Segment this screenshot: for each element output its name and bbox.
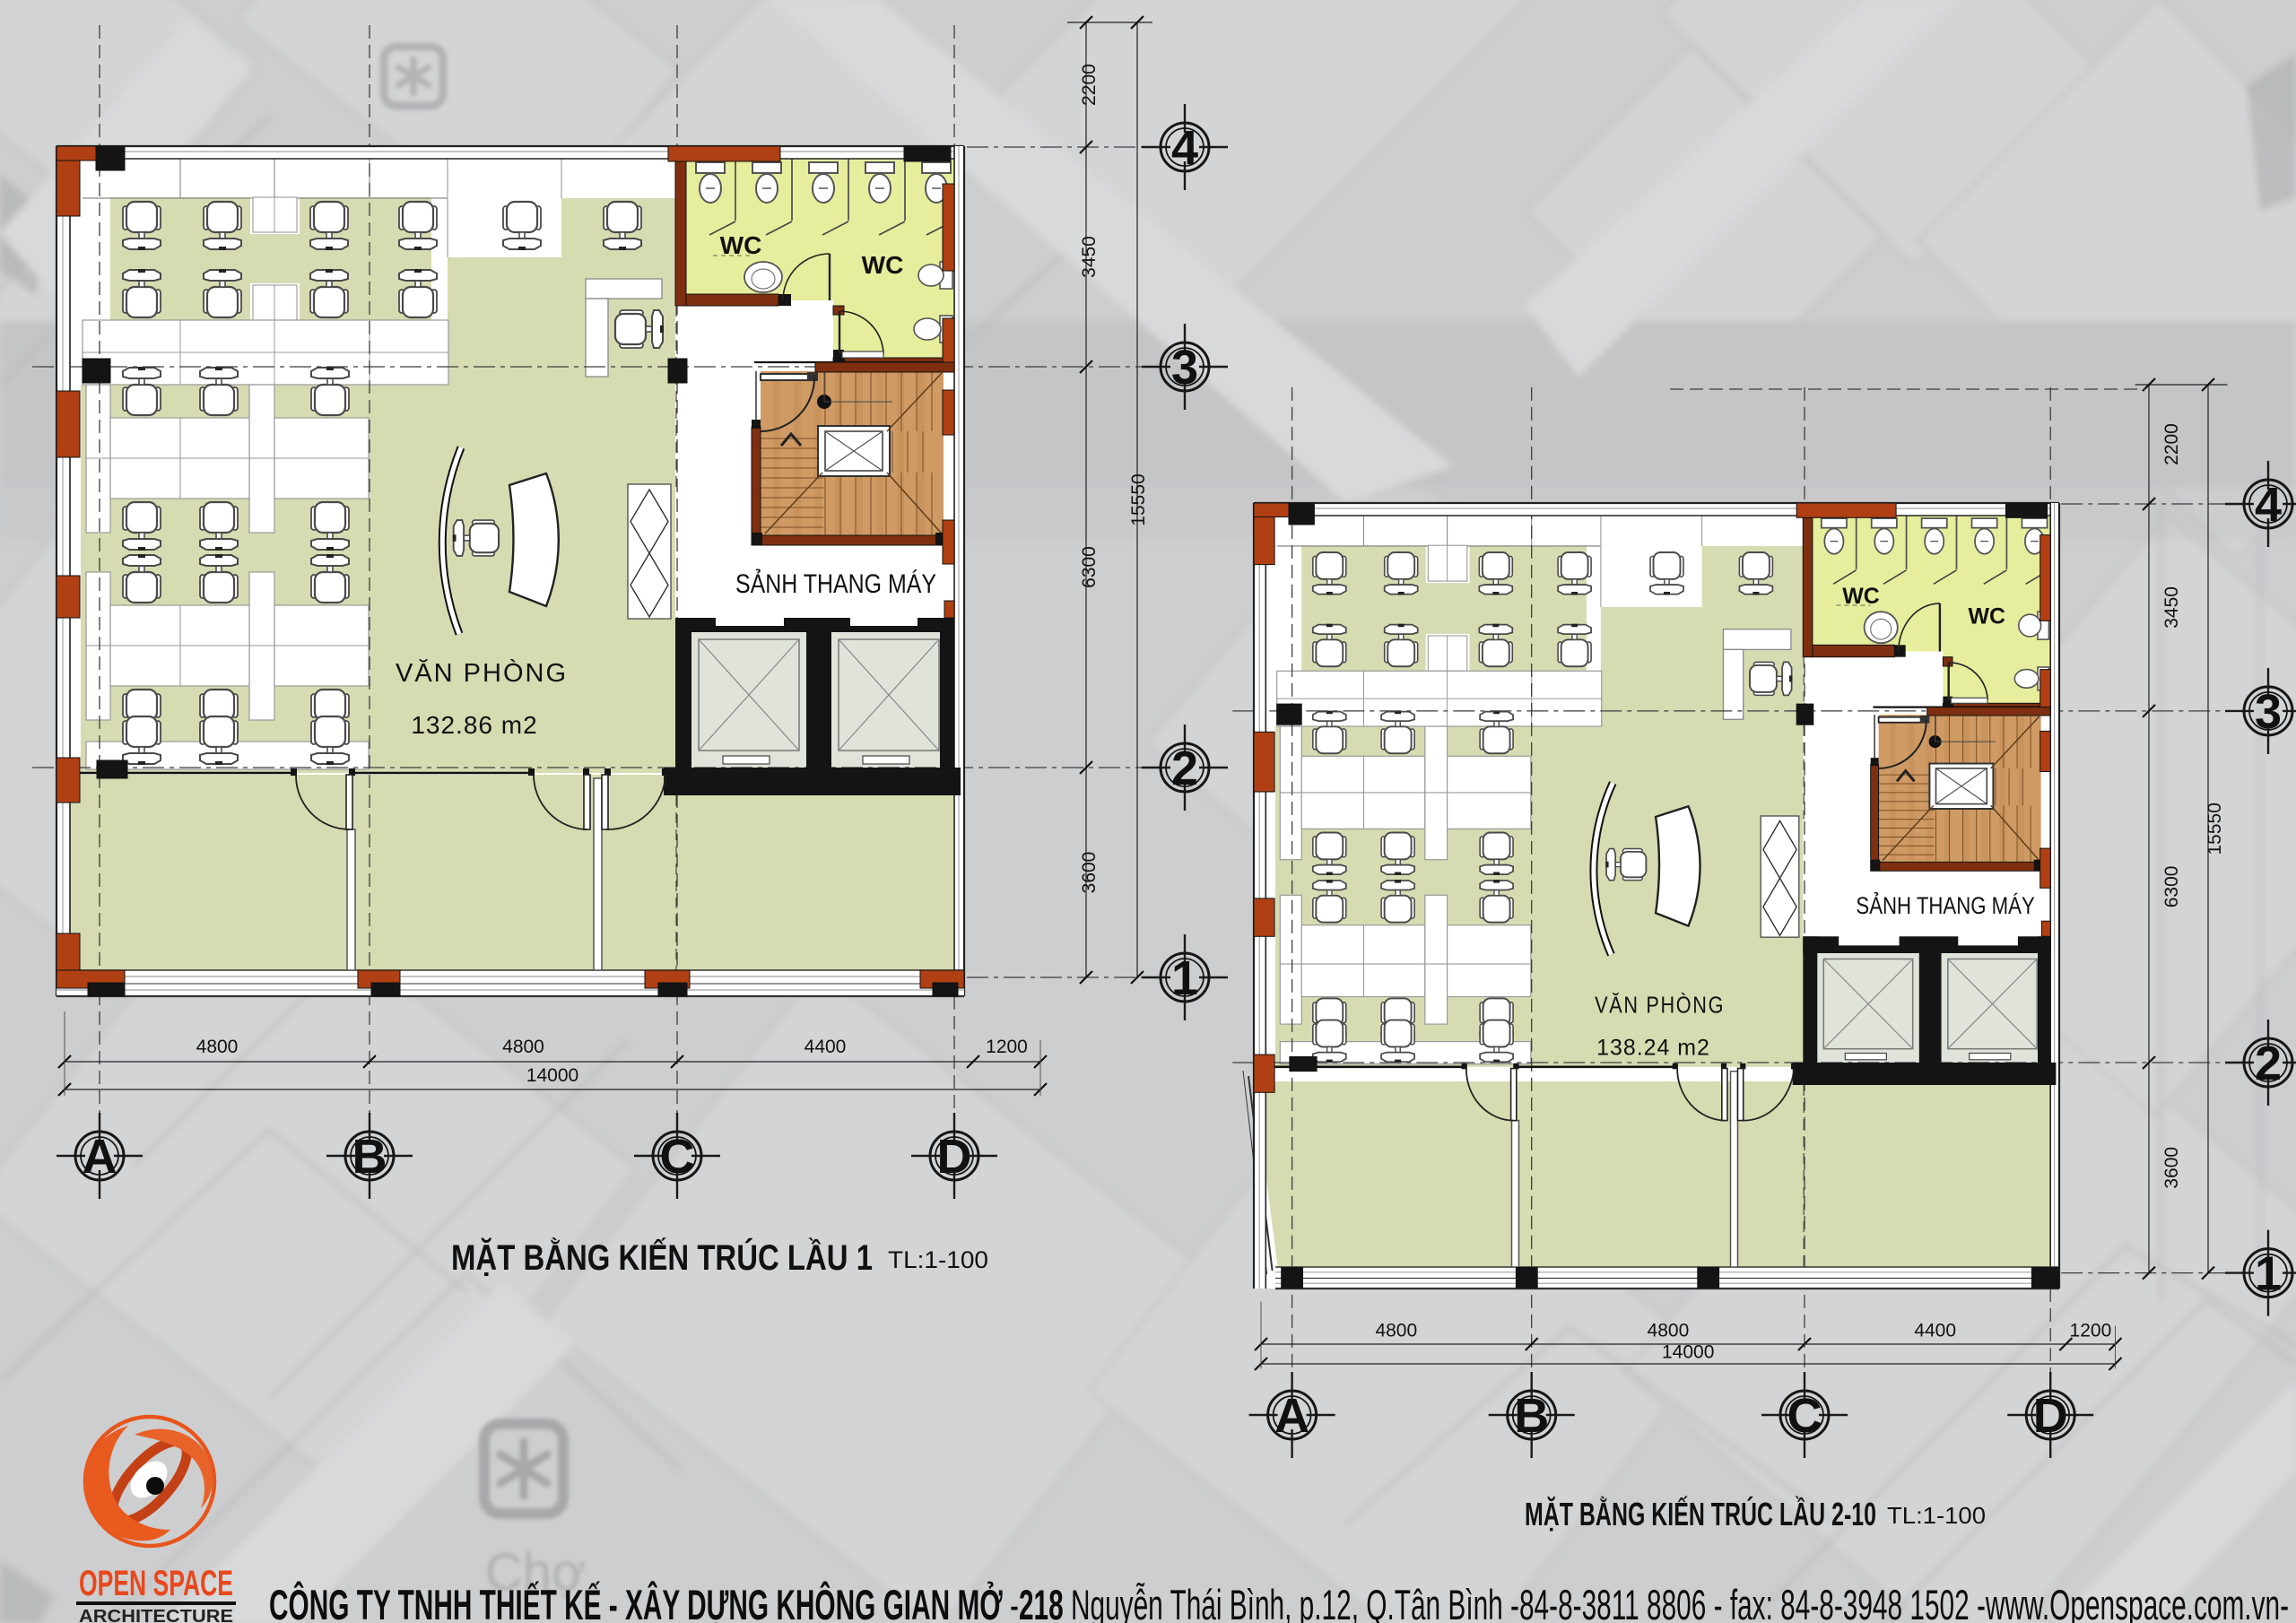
svg-text:C: C	[660, 1130, 695, 1184]
svg-text:6300: 6300	[1079, 546, 1100, 588]
svg-text:3: 3	[2255, 685, 2282, 739]
svg-text:15550: 15550	[1128, 473, 1149, 525]
svg-text:WC: WC	[1969, 604, 2006, 629]
svg-text:C: C	[1787, 1389, 1822, 1443]
svg-text:3600: 3600	[2161, 1147, 2182, 1189]
svg-text:CÔNG TY TNHH THIẾT KẾ - XÂY DỰ: CÔNG TY TNHH THIẾT KẾ - XÂY DỰNG KHÔNG G…	[269, 1581, 2289, 1623]
svg-text:138.24 m2: 138.24 m2	[1596, 1035, 1710, 1060]
svg-text:A: A	[1274, 1389, 1309, 1443]
svg-text:B: B	[352, 1130, 387, 1184]
svg-text:D: D	[937, 1130, 972, 1184]
svg-text:TL:1-100: TL:1-100	[1887, 1502, 1986, 1529]
svg-text:132.86 m2: 132.86 m2	[411, 711, 537, 739]
svg-text:2200: 2200	[1079, 64, 1100, 106]
svg-text:ARCHITECTURE: ARCHITECTURE	[79, 1607, 233, 1623]
svg-text:TL:1-100: TL:1-100	[888, 1246, 988, 1273]
svg-text:4400: 4400	[1914, 1321, 1956, 1341]
svg-text:3600: 3600	[1079, 852, 1100, 894]
svg-text:VĂN PHÒNG: VĂN PHÒNG	[1595, 992, 1725, 1018]
svg-text:2: 2	[2255, 1037, 2282, 1090]
svg-text:VĂN PHÒNG: VĂN PHÒNG	[396, 658, 568, 688]
svg-text:4800: 4800	[1648, 1321, 1690, 1341]
svg-text:6300: 6300	[2161, 866, 2182, 908]
svg-text:1200: 1200	[986, 1037, 1028, 1057]
svg-text:2: 2	[1171, 742, 1198, 795]
svg-text:MẶT BẰNG KIẾN TRÚC LẦU 2-10: MẶT BẰNG KIẾN TRÚC LẦU 2-10	[1525, 1495, 1876, 1532]
svg-text:1: 1	[2255, 1247, 2282, 1301]
svg-text:4400: 4400	[804, 1037, 847, 1057]
svg-text:4800: 4800	[196, 1037, 239, 1057]
svg-text:OPEN SPACE: OPEN SPACE	[79, 1564, 233, 1603]
svg-text:WC: WC	[720, 231, 762, 259]
svg-text:14000: 14000	[1662, 1342, 1714, 1363]
svg-text:1200: 1200	[2070, 1321, 2112, 1341]
svg-text:1: 1	[1171, 951, 1198, 1005]
svg-text:4: 4	[2255, 478, 2282, 532]
svg-text:3: 3	[1171, 341, 1198, 395]
svg-text:2200: 2200	[2161, 423, 2182, 465]
svg-text:SẢNH THANG MÁY: SẢNH THANG MÁY	[735, 568, 936, 599]
svg-text:4800: 4800	[1375, 1321, 1417, 1341]
svg-text:B: B	[1514, 1389, 1549, 1443]
svg-text:WC: WC	[1842, 584, 1880, 609]
svg-text:3450: 3450	[2161, 586, 2182, 629]
svg-text:14000: 14000	[526, 1065, 578, 1086]
svg-text:SẢNH THANG MÁY: SẢNH THANG MÁY	[1856, 892, 2035, 919]
svg-text:4800: 4800	[502, 1037, 544, 1057]
svg-text:WC: WC	[862, 251, 904, 279]
svg-text:A: A	[83, 1130, 117, 1184]
svg-text:15550: 15550	[2205, 803, 2225, 855]
svg-text:D: D	[2033, 1389, 2068, 1443]
svg-text:MẶT BẰNG KIẾN TRÚC LẦU 1: MẶT BẰNG KIẾN TRÚC LẦU 1	[451, 1237, 873, 1278]
svg-text:3450: 3450	[1079, 236, 1100, 278]
svg-text:4: 4	[1171, 121, 1198, 175]
